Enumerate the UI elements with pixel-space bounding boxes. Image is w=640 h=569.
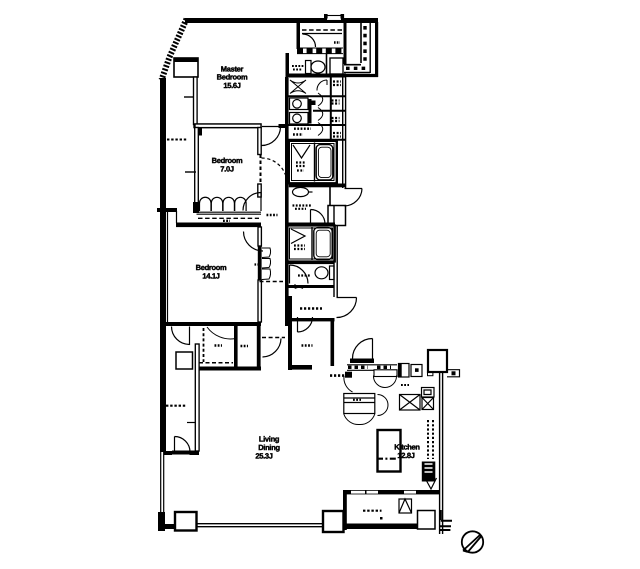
svg-text:25.3J: 25.3J [255, 452, 272, 461]
svg-text:14.1J: 14.1J [202, 272, 219, 281]
svg-text:12.8J: 12.8J [397, 451, 414, 460]
svg-text:7.0J: 7.0J [220, 165, 234, 174]
svg-text:15.6J: 15.6J [223, 81, 240, 90]
